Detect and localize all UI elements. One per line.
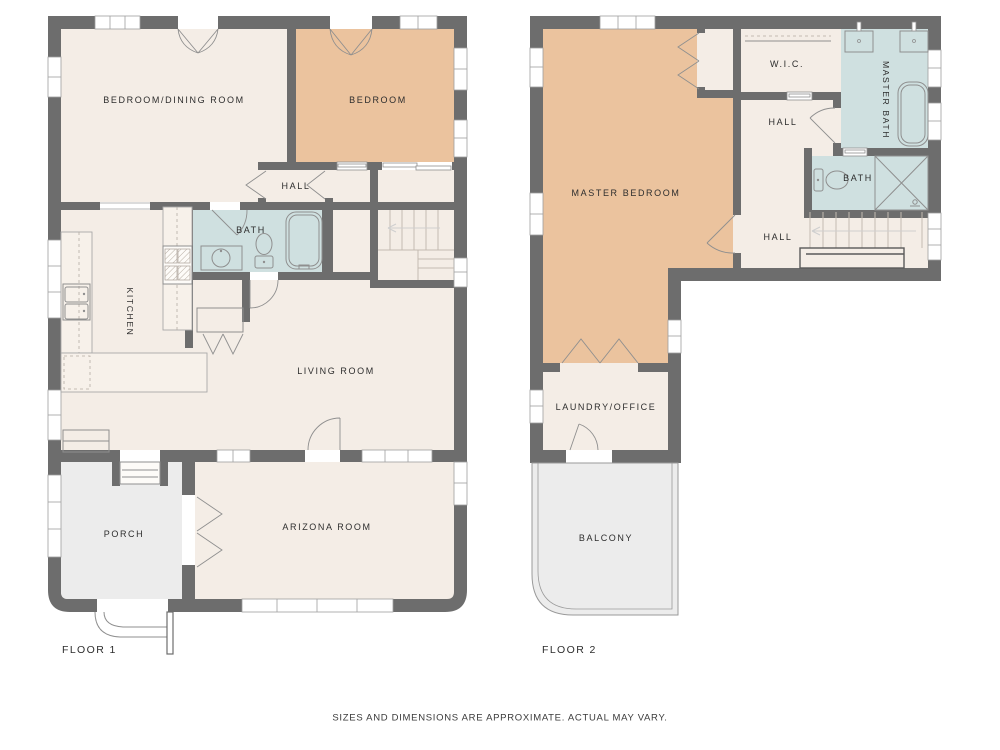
floor1-room-label-bedroom: BEDROOM	[349, 95, 407, 105]
floor1-room-label-porch: PORCH	[104, 529, 145, 539]
floor2-room-label-master-bedroom: MASTER BEDROOM	[572, 188, 681, 198]
stove	[163, 246, 192, 284]
floor1-room-label-kitchen: KITCHEN	[125, 288, 135, 337]
floorplan-canvas: BEDROOM/DINING ROOM BEDROOM HALL BATH KI…	[0, 0, 1000, 750]
floor2-plan	[530, 16, 941, 615]
floor2-bath-fill	[812, 156, 928, 210]
floor2-room-label-bath: BATH	[843, 173, 873, 183]
floor2-caption: FLOOR 2	[542, 644, 597, 656]
floor1-plan	[48, 16, 467, 654]
floor2-room-label-master-bath: MASTER BATH	[881, 61, 891, 139]
floor2-room-label-balcony: BALCONY	[579, 533, 633, 543]
floor1-room-label-hall: HALL	[282, 181, 311, 191]
disclaimer-text: SIZES AND DIMENSIONS ARE APPROXIMATE. AC…	[332, 713, 667, 724]
floor2-room-label-wic: W.I.C.	[770, 59, 804, 69]
floor2-room-label-hall-upper: HALL	[769, 117, 798, 127]
floor1-caption: FLOOR 1	[62, 644, 117, 656]
floor2-room-label-hall-lower: HALL	[764, 232, 793, 242]
floor2-room-label-laundry-office: LAUNDRY/OFFICE	[556, 402, 657, 412]
floorplan-drawing	[0, 0, 1000, 750]
floor1-room-label-bath: BATH	[236, 225, 266, 235]
floor1-room-label-living-room: LIVING ROOM	[297, 366, 375, 376]
floor1-room-label-arizona-room: ARIZONA ROOM	[282, 522, 371, 532]
floor1-room-label-bedroom-dining-room: BEDROOM/DINING ROOM	[103, 95, 244, 105]
